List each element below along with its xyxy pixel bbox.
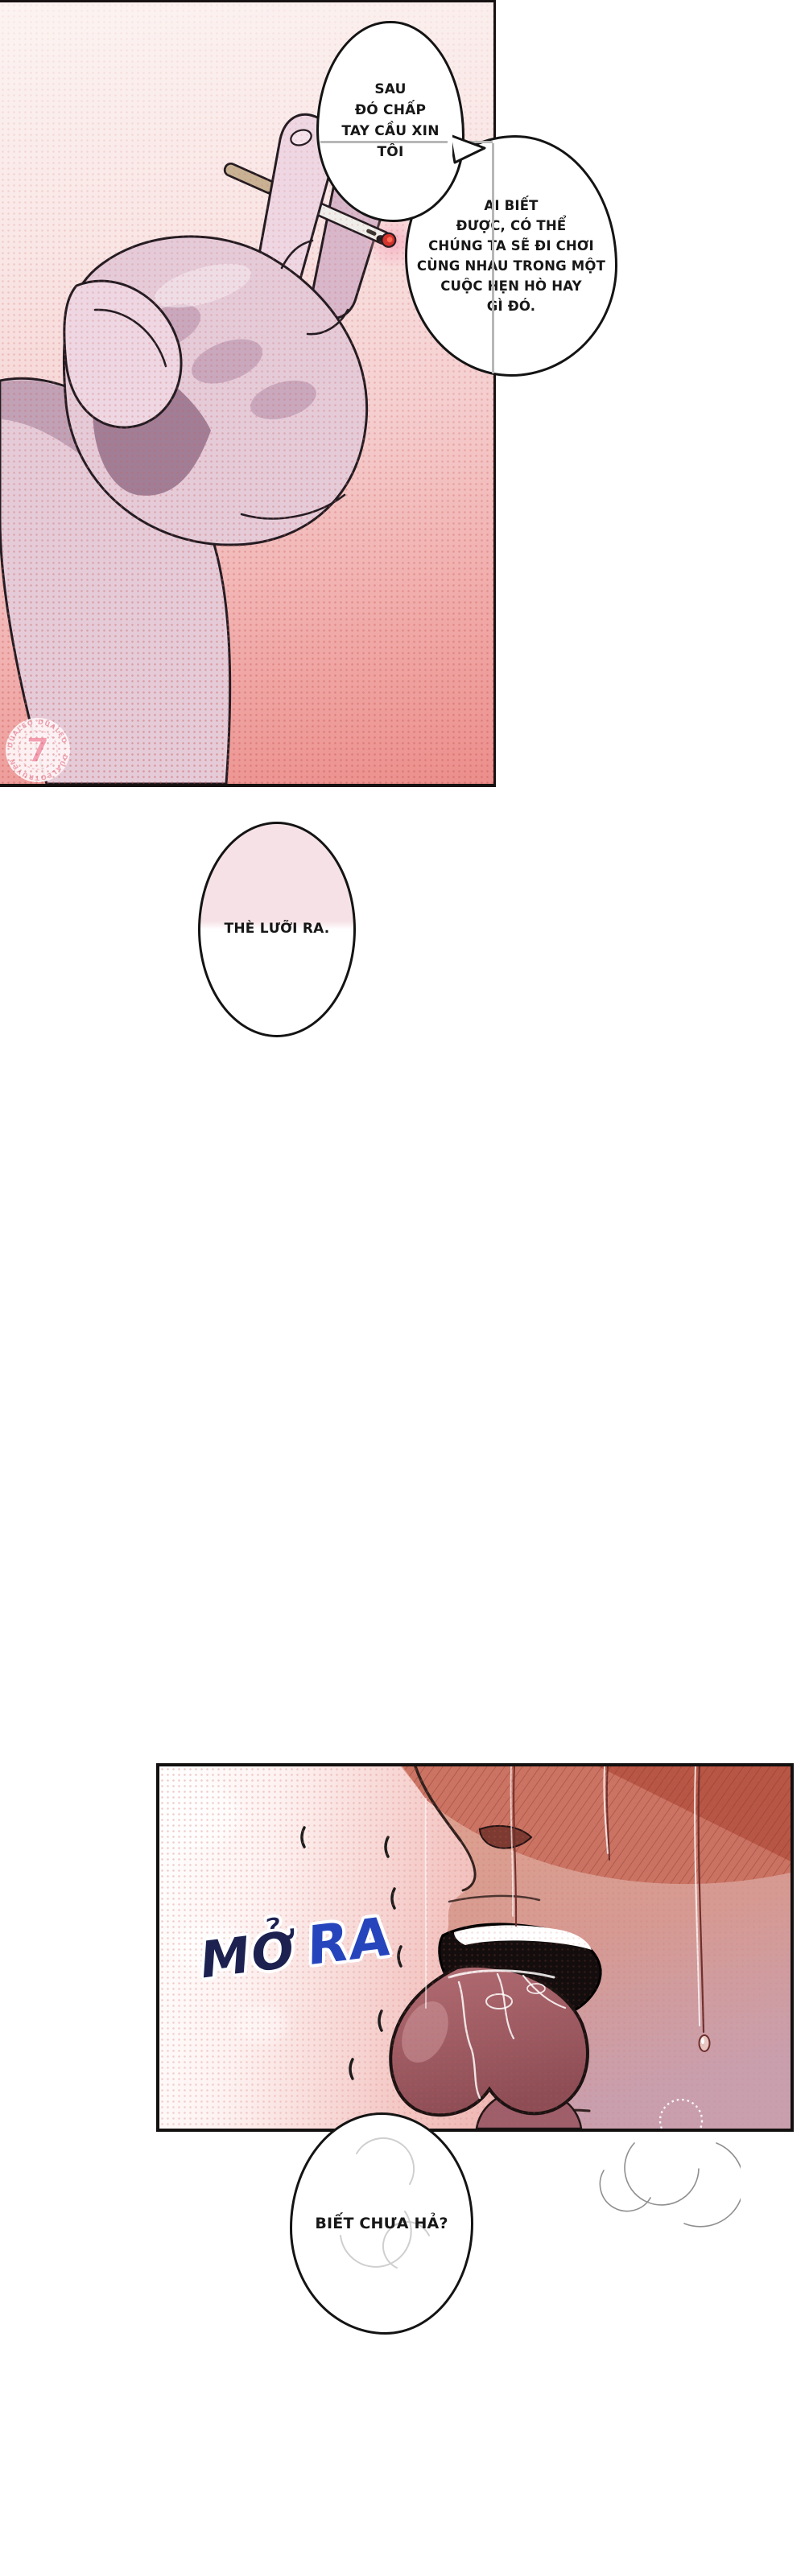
panel-border-through-bubble-v: [492, 143, 494, 373]
bubble-tail: [448, 130, 488, 166]
speech-bubble-understood: BIẾT CHƯA HẢ?: [290, 2112, 473, 2335]
bubble-arc-decor: [588, 2129, 741, 2249]
sfx-word-mo: MỞ: [197, 1919, 299, 1989]
comic-page: DUALEO · DUALEOTRUYEN · DUALEO · 7: [0, 0, 805, 2576]
speech-text: SAU ĐÓ CHẤP TAY CẦU XIN TÔI: [341, 80, 439, 163]
sfx-word-ra: RA: [308, 1905, 393, 1978]
speech-text: THÈ LƯỠI RA.: [225, 919, 330, 940]
speech-bubble-tongue: THÈ LƯỠI RA.: [198, 822, 356, 1037]
speech-text: AI BIẾT ĐƯỢC, CÓ THỂ CHÚNG TA SẼ ĐI CHƠI…: [417, 196, 605, 316]
badge-number: 7: [26, 731, 49, 770]
speech-text: BIẾT CHƯA HẢ?: [315, 2212, 448, 2236]
background-highlights: [159, 1779, 287, 2043]
